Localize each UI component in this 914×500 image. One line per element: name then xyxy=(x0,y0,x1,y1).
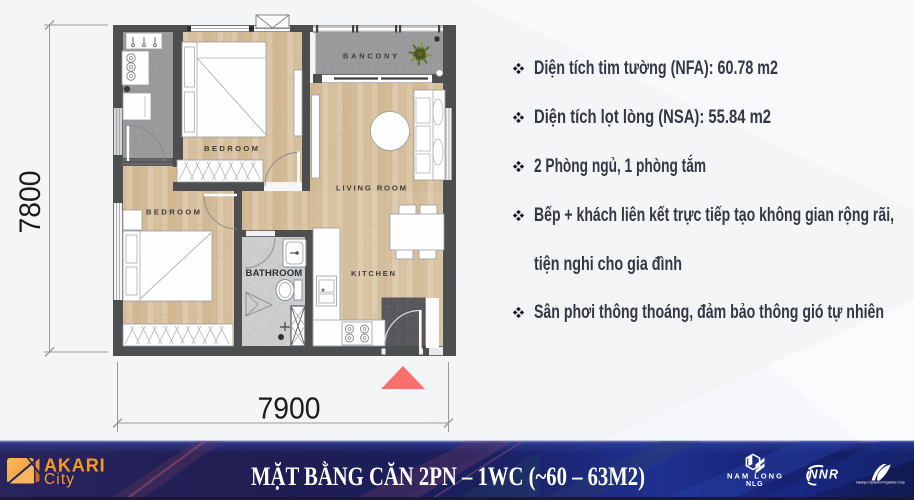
svg-text:tiện nghi cho gia đình: tiện nghi cho gia đình xyxy=(534,254,682,275)
svg-text:Hankyu Hanshin Properties Corp: Hankyu Hanshin Properties Corp xyxy=(856,481,905,485)
svg-text:7800: 7800 xyxy=(14,171,47,234)
svg-text:2 Phòng ngủ, 1 phòng tắm: 2 Phòng ngủ, 1 phòng tắm xyxy=(534,155,706,177)
svg-text:BEDROOM: BEDROOM xyxy=(204,144,260,153)
svg-text:NLG: NLG xyxy=(746,481,764,488)
svg-text:MẶT BẰNG CĂN 2PN – 1WC (~60 –: MẶT BẰNG CĂN 2PN – 1WC (~60 – 63M2) xyxy=(251,462,645,491)
svg-text:KITCHEN: KITCHEN xyxy=(351,269,397,278)
svg-text:Diện tích lọt lòng (NSA): 55.8: Diện tích lọt lòng (NSA): 55.84 m2 xyxy=(534,107,771,128)
svg-text:Bếp + khách liên kết trực tiếp: Bếp + khách liên kết trực tiếp tạo không… xyxy=(534,205,894,226)
svg-text:7900: 7900 xyxy=(258,391,321,426)
svg-text:BEDROOM: BEDROOM xyxy=(146,208,202,217)
svg-text:Diện tích tim tường (NFA): 60.: Diện tích tim tường (NFA): 60.78 m2 xyxy=(534,58,778,79)
svg-text:LIVING ROOM: LIVING ROOM xyxy=(336,184,408,193)
svg-text:City: City xyxy=(44,471,74,488)
svg-text:NNR: NNR xyxy=(809,468,839,482)
svg-text:NAM LONG: NAM LONG xyxy=(727,472,783,481)
svg-text:BATHROOM: BATHROOM xyxy=(246,268,304,279)
svg-text:BANCONY: BANCONY xyxy=(343,52,399,61)
svg-text:Sân phơi thông thoáng, đảm bảo: Sân phơi thông thoáng, đảm bảo thông gió… xyxy=(534,302,884,323)
